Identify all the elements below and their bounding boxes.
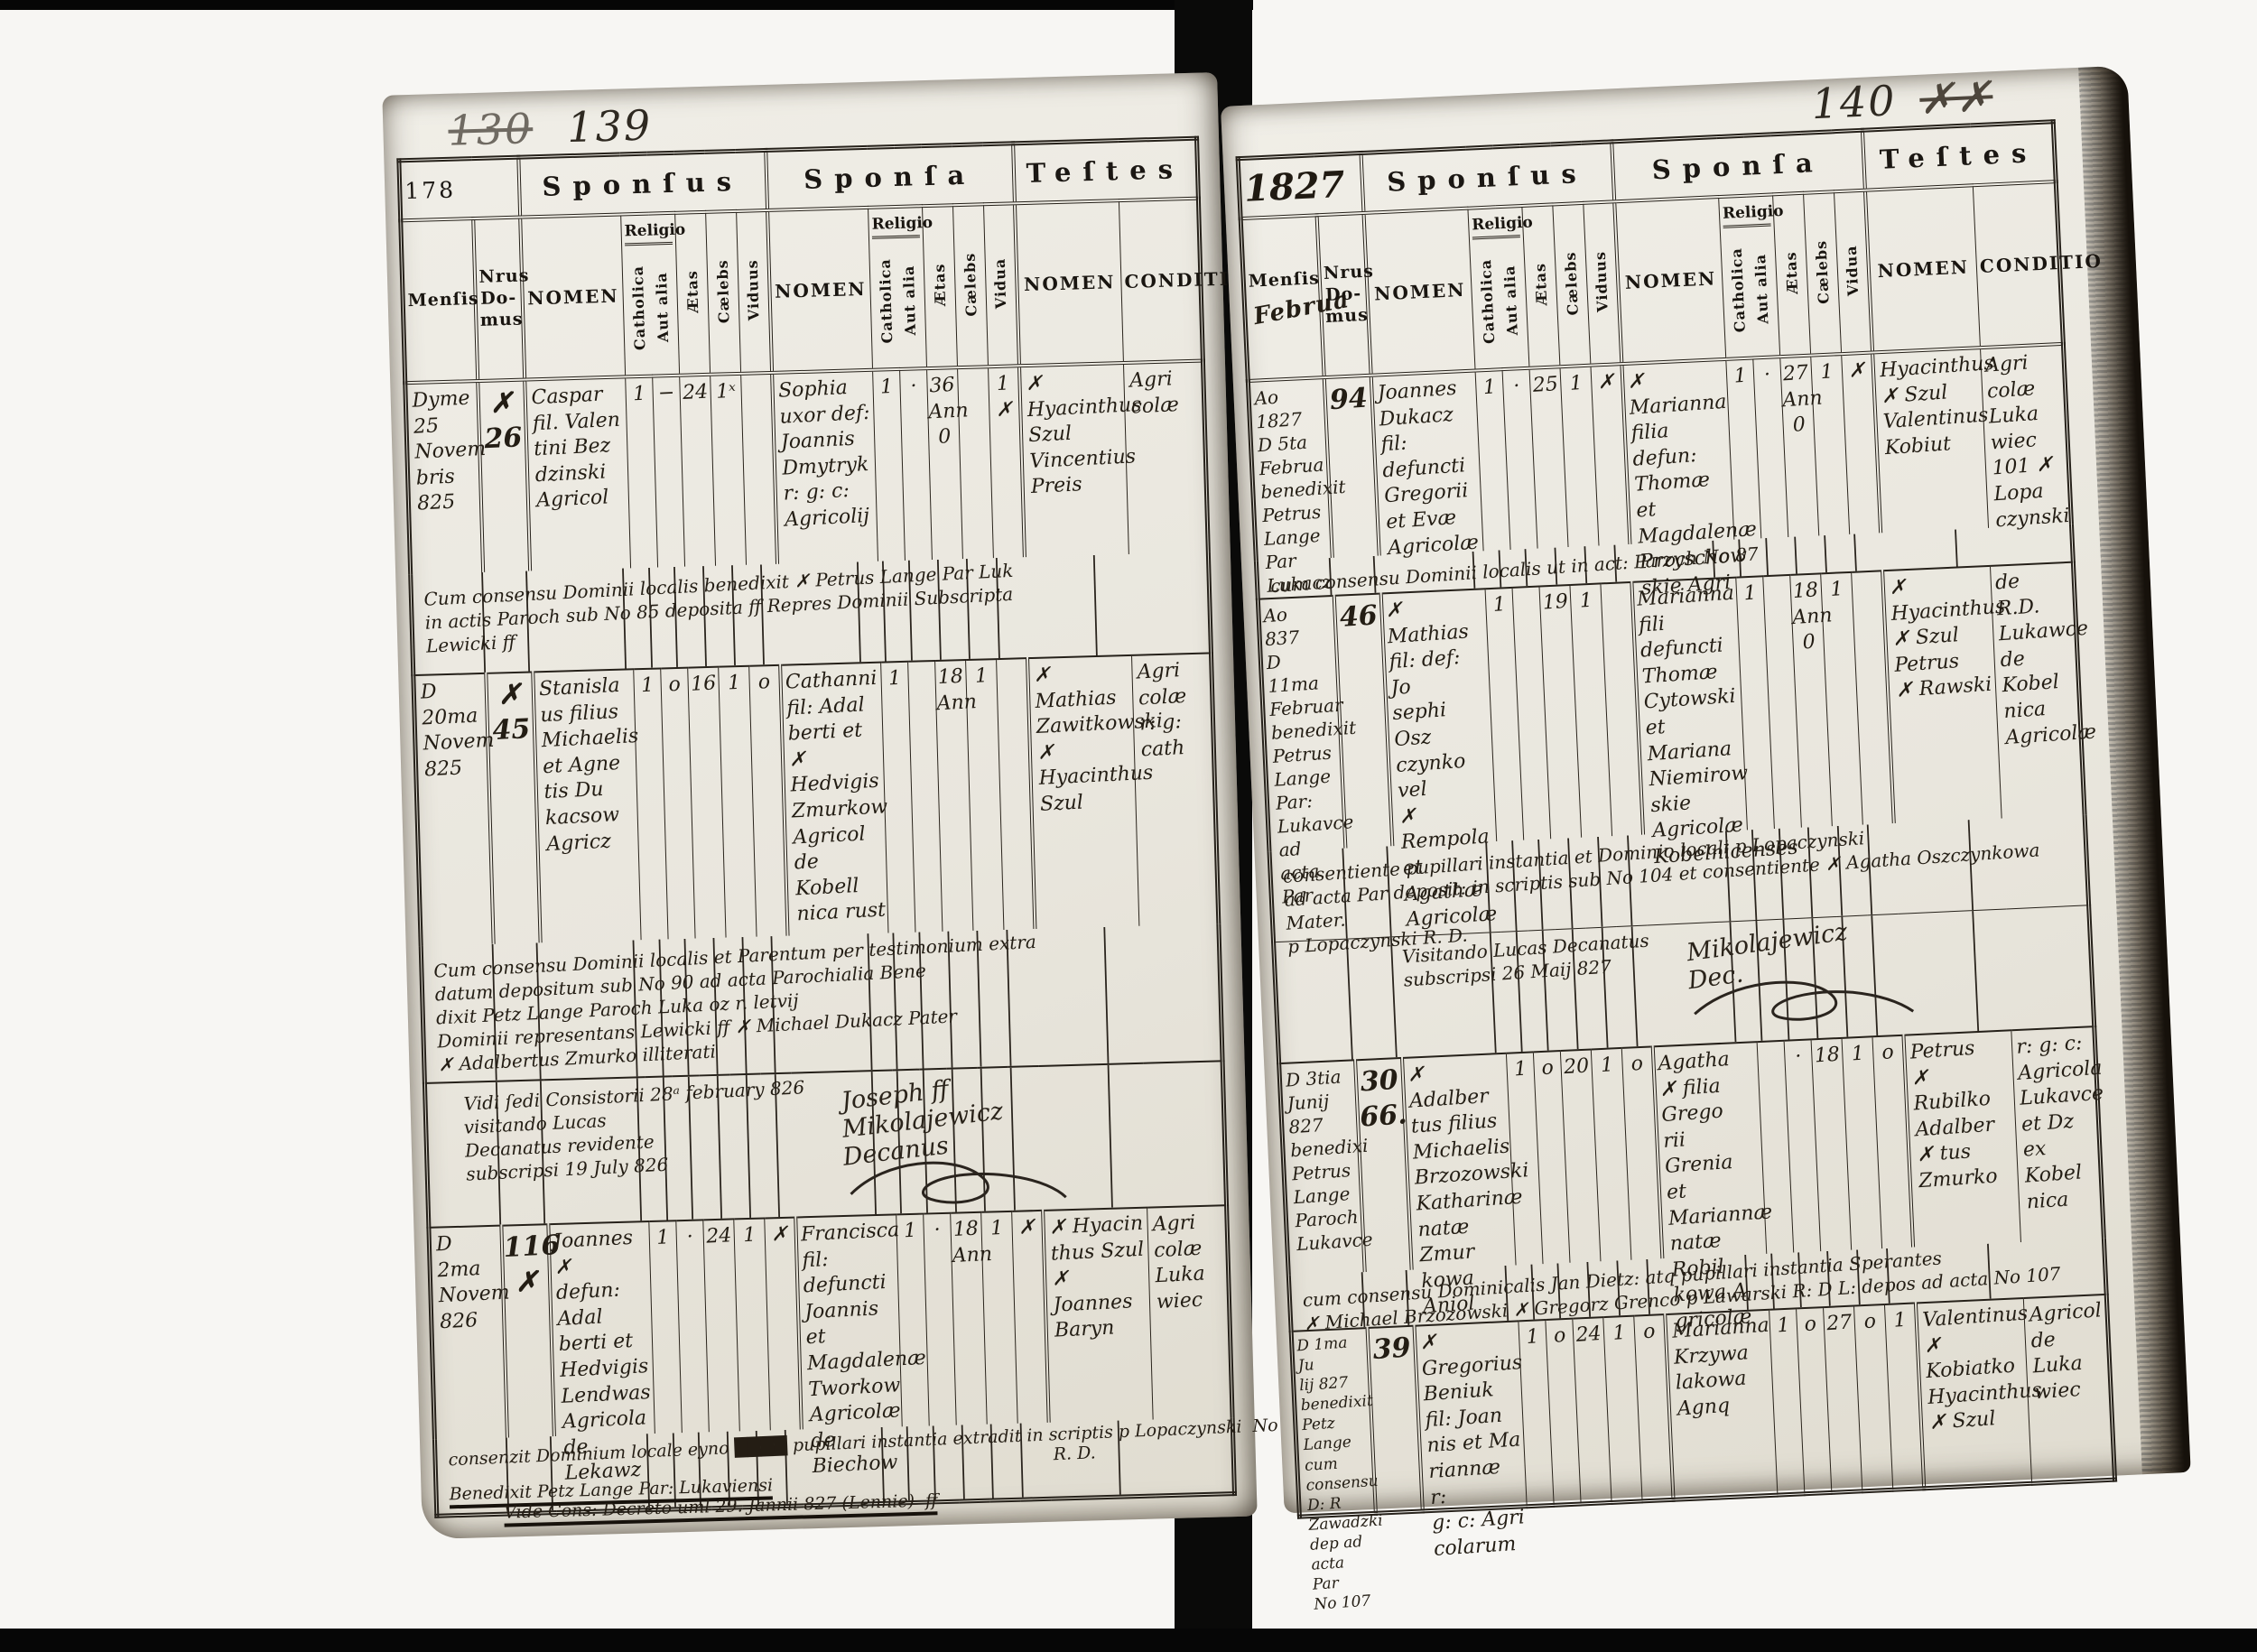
header-testes: Teſtes bbox=[1013, 138, 1199, 203]
conditio: Agri colæ r: g: cath bbox=[1132, 653, 1219, 925]
header-sponsa-aetas: Ætas bbox=[923, 205, 958, 368]
entry-house-number: ✗ 26 bbox=[478, 380, 530, 572]
entry-row: Dyme 25 Novem bris 825 ✗ 26 Caspar fil. … bbox=[405, 361, 1209, 575]
page-number: 139 bbox=[566, 101, 652, 153]
sponsus-name: ✗ Mathias fil: def: Jo sephi Osz czynko … bbox=[1380, 589, 1497, 846]
page-number-annotation: 130139 bbox=[448, 101, 653, 155]
entry-note-row: Cum consensu Dominii localis et Parentum… bbox=[421, 923, 1222, 1083]
entry-house-number: 116 ✗ bbox=[501, 1224, 554, 1437]
conditio: r: g: c: Agricola Lukavce et Dz ex Kobel… bbox=[2011, 1026, 2104, 1242]
aut-alia-label: Aut alia bbox=[1751, 254, 1772, 325]
page-number-annotation: 140✗✗ bbox=[1810, 71, 1993, 128]
sponsus-name: Joannes ✗ defun: Adal berti et Hedvigis … bbox=[548, 1221, 655, 1436]
register-table-right: 1827 Sponſus Sponſa Teſtes MenſisFebrua … bbox=[1236, 119, 2118, 1518]
entry-mensis: Ao 1827 D 5ta Februa benedixit Petrus La… bbox=[1248, 377, 1332, 561]
header-sponsus-caelebs: Cælebs bbox=[706, 211, 741, 375]
header-house-number: Nrus Do- mus bbox=[473, 218, 525, 381]
catholica-label: Catholica bbox=[1727, 247, 1748, 333]
header-mensis: MenſisFebrua bbox=[1240, 215, 1324, 381]
sponsus-name: Stanisla us filius Michaelis et Agne tis… bbox=[533, 669, 641, 942]
header-sponsa: Sponſa bbox=[766, 144, 1015, 210]
visitation-note: Vidi ſedi Consistorii 28ᵃ february 826 v… bbox=[424, 1061, 1226, 1228]
header-sponsus-viduus: Viduus bbox=[737, 210, 772, 374]
entry-mensis: D 1ma Ju lij 827 benedixit Petz Lange cu… bbox=[1291, 1328, 1375, 1517]
testes-names: ✗ Hyacinthus Szul Vincentius Preis bbox=[1019, 363, 1129, 557]
header-sponsus: Sponſus bbox=[1361, 142, 1614, 213]
scanner-backing-top bbox=[0, 0, 1253, 10]
entry-row: D 20ma Novem 825 ✗ 45 Stanisla us filius… bbox=[413, 653, 1219, 946]
register-table-left: 178 Sponſus Sponſa Teſtes Menſis Nrus Do… bbox=[396, 136, 1237, 1518]
form-number: 178 bbox=[399, 157, 520, 220]
sponsus-name: Caspar fil. Valen tini Bez dzinski Agric… bbox=[525, 376, 631, 571]
header-sponsa-caelebs: Cælebs bbox=[953, 204, 989, 367]
testes-names: Petrus ✗ Rubilko Adalber ✗ tus Zmurko bbox=[1903, 1030, 2021, 1247]
entry-mensis: Dyme 25 Novem bris 825 bbox=[405, 381, 483, 574]
visitation-lines: Visitando Lucas Decanatus subscripsi 26 … bbox=[1401, 928, 1655, 1045]
testes-names: ✗ Mathias Zawitkowski ✗ Hyacinthus Szul bbox=[1027, 655, 1139, 929]
header-conditio: CONDITIO bbox=[1119, 199, 1203, 363]
header-testes: Teſtes bbox=[1862, 122, 2057, 190]
marginal-note: Cum consensu Dominii localis et Parentum… bbox=[421, 923, 1222, 1083]
header-sponsus-nomen: NOMEN bbox=[1363, 209, 1475, 376]
header-sponsus-religio: Religio CatholicaAut alia bbox=[621, 213, 680, 377]
year-label: 1827 bbox=[1238, 153, 1363, 219]
sponsus-name: ✗ Gregorius Beniuk fil: Joan nis et Ma r… bbox=[1414, 1321, 1527, 1510]
catholica-label: Catholica bbox=[876, 258, 896, 344]
page-number: 140 bbox=[1810, 76, 1897, 128]
header-sponsa-religio: Religio CatholicaAut alia bbox=[868, 206, 927, 370]
conditio: Agri colæ Luka wiec bbox=[1147, 1205, 1233, 1419]
header-sponsa: Sponſa bbox=[1611, 130, 1865, 201]
mensis-annotation: Februa bbox=[1251, 292, 1318, 332]
entry-house-number: 39 bbox=[1367, 1326, 1422, 1513]
entry-row: Ao 837 D 11ma Februar benedixit Petrus L… bbox=[1258, 562, 2085, 852]
sponsa-name: Cathanni fil: Adal berti et ✗ Hedvigis Z… bbox=[780, 663, 888, 936]
conditio: Agricol de Luka wiec bbox=[2023, 1295, 2114, 1483]
column-header-row: Menſis Nrus Do- mus NOMEN Religio Cathol… bbox=[401, 199, 1203, 384]
sponsus-name: Joannes Dukacz fil: defuncti Gregorii et… bbox=[1370, 371, 1483, 556]
crossed-scribble: ✗✗ bbox=[1918, 71, 1993, 124]
sponsa-name: ✗ Marianna filia defun: Thomæ et Magdale… bbox=[1621, 359, 1734, 544]
scanner-backing-bottom bbox=[0, 1629, 2257, 1652]
conditio: Agri colæ Luka wiec 101 ✗ Lopa czynski bbox=[1981, 344, 2072, 528]
religio-label: Religio bbox=[1722, 201, 1770, 226]
header-house-number: Nrus Do- mus bbox=[1316, 213, 1370, 377]
aut-alia-label: Aut alia bbox=[900, 265, 919, 335]
header-conditio: CONDITIO bbox=[1973, 181, 2063, 348]
sponsa-name: Agatha ✗ filia Grego rii Grenia et Maria… bbox=[1652, 1042, 1767, 1258]
entry-house-number: ✗ 45 bbox=[486, 672, 540, 943]
header-sponsa-religio: Religio CatholicaAut alia bbox=[1719, 194, 1780, 359]
entry-mensis: D 3tia Junij 827 benedixi Petrus Lange P… bbox=[1279, 1060, 1365, 1276]
religio-label: Religio bbox=[871, 212, 920, 236]
aut-alia-label: Aut alia bbox=[653, 272, 672, 342]
book-scan: 130139 178 Sponſus Sponſa Teſtes Menſis … bbox=[0, 0, 2257, 1652]
religio-label: Religio bbox=[1472, 212, 1520, 237]
catholica-label: Catholica bbox=[628, 265, 648, 351]
sponsa-name: Francisca fil: defuncti Joannis et Magda… bbox=[795, 1214, 903, 1429]
sponsa-name: Marianna Krzywa lakowa Agnq bbox=[1665, 1310, 1778, 1499]
entry-row: D 2ma Novem 826 116 ✗ Joannes ✗ defun: A… bbox=[429, 1205, 1232, 1440]
header-sponsa-nomen: NOMEN bbox=[1614, 197, 1726, 364]
header-mensis: Menſis bbox=[401, 218, 478, 383]
entry-mensis: Ao 837 D 11ma Februar benedixit Petrus L… bbox=[1258, 596, 1345, 852]
entry-mensis: D 20ma Novem 825 bbox=[413, 673, 493, 946]
header-testes-nomen: NOMEN bbox=[1865, 185, 1981, 352]
testes-names: ✗ Hyacin thus Szul ✗ Joannes Baryn bbox=[1043, 1208, 1154, 1423]
header-sponsus-aetas: Ætas bbox=[675, 212, 711, 376]
conditio: de R.D. Lukawce de Kobel nica Agricolæ bbox=[1991, 562, 2085, 819]
entry-house-number: 94 bbox=[1324, 376, 1379, 558]
visitation-row: Vidi ſedi Consistorii 28ᵃ february 826 v… bbox=[424, 1061, 1226, 1228]
left-page: 130139 178 Sponſus Sponſa Teſtes Menſis … bbox=[382, 72, 1257, 1539]
header-sponsus-religio: Religio CatholicaAut alia bbox=[1468, 206, 1529, 371]
entry-row: D 3tia Junij 827 benedixi Petrus Lange P… bbox=[1279, 1026, 2104, 1276]
testes-names: ✗ Hyacinthus ✗ Szul Petrus ✗ Rawski bbox=[1882, 566, 2002, 823]
sponsus-name: ✗ Adalber tus filius Michaelis Brzozowsk… bbox=[1402, 1053, 1517, 1270]
header-sponsus-nomen: NOMEN bbox=[520, 214, 626, 379]
sponsa-name: Marianna fili defuncti Thomæ Cytowski et… bbox=[1631, 578, 1748, 835]
testes-names: Valentinus ✗ Kobiatko Hyacinthus ✗ Szul bbox=[1915, 1298, 2031, 1488]
religio-label: Religio bbox=[624, 219, 673, 243]
header-sponsa-nomen: NOMEN bbox=[767, 208, 873, 373]
header-testes-nomen: NOMEN bbox=[1015, 200, 1124, 366]
sponsa-name: Sophia uxor def: Joannis Dmytryk r: g: c… bbox=[772, 370, 878, 564]
crossed-page-number: 130 bbox=[448, 104, 534, 155]
header-sponsa-vidua: Vidua bbox=[984, 203, 1019, 367]
header-sponsus: Sponſus bbox=[518, 151, 767, 218]
entry-mensis: D 2ma Novem 826 bbox=[429, 1226, 507, 1440]
conditio: Agri colæ bbox=[1124, 361, 1209, 554]
testes-names: Hyacinthus ✗ Szul Valentinus Kobiut bbox=[1872, 348, 1989, 533]
aut-alia-label: Aut alia bbox=[1501, 265, 1522, 336]
catholica-label: Catholica bbox=[1477, 258, 1498, 344]
right-page: 140✗✗ 1827 Sponſus Sponſa Teſtes MenſisF… bbox=[1221, 65, 2191, 1513]
